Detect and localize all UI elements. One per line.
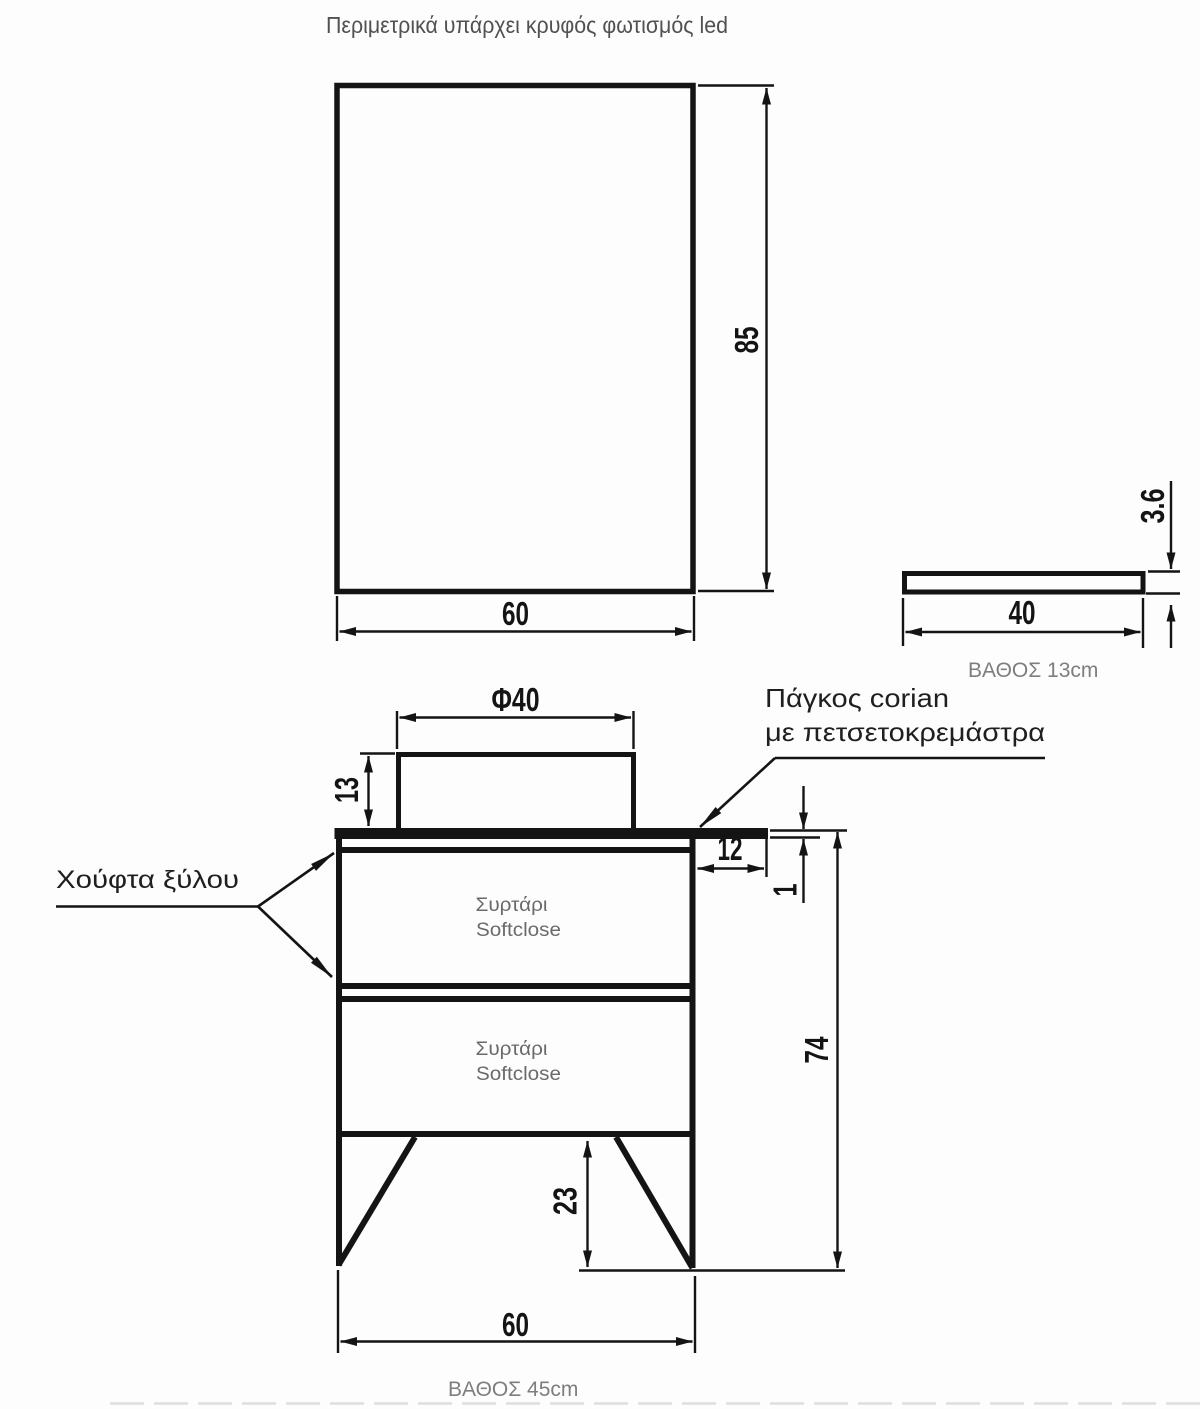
svg-text:ΒΑΘΟΣ 45cm: ΒΑΘΟΣ 45cm: [448, 1378, 578, 1401]
svg-text:1: 1: [767, 884, 804, 897]
svg-text:ΒΑΘΟΣ 13cm: ΒΑΘΟΣ 13cm: [968, 659, 1098, 682]
svg-text:3.6: 3.6: [1134, 489, 1171, 524]
svg-text:60: 60: [502, 595, 529, 632]
svg-text:40: 40: [1009, 594, 1036, 631]
svg-text:Πάγκος corian: Πάγκος corian: [765, 683, 949, 713]
svg-text:Χούφτα ξύλου: Χούφτα ξύλου: [56, 866, 239, 894]
svg-text:60: 60: [502, 1306, 529, 1343]
svg-text:12: 12: [718, 830, 743, 867]
svg-text:23: 23: [547, 1187, 584, 1215]
svg-text:Περιμετρικά υπάρχει κρυφός φωτ: Περιμετρικά υπάρχει κρυφός φωτισμός led: [326, 12, 728, 38]
svg-text:Συρτάρι: Συρτάρι: [476, 894, 548, 916]
svg-text:με πετσετοκρεμάστρα: με πετσετοκρεμάστρα: [765, 717, 1045, 747]
svg-text:Softclose: Softclose: [476, 919, 561, 941]
svg-text:85: 85: [728, 327, 765, 354]
svg-text:Softclose: Softclose: [476, 1063, 561, 1085]
svg-text:13: 13: [328, 777, 365, 803]
svg-text:Συρτάρι: Συρτάρι: [476, 1038, 548, 1060]
svg-text:74: 74: [798, 1036, 835, 1063]
svg-text:Φ40: Φ40: [492, 681, 540, 718]
